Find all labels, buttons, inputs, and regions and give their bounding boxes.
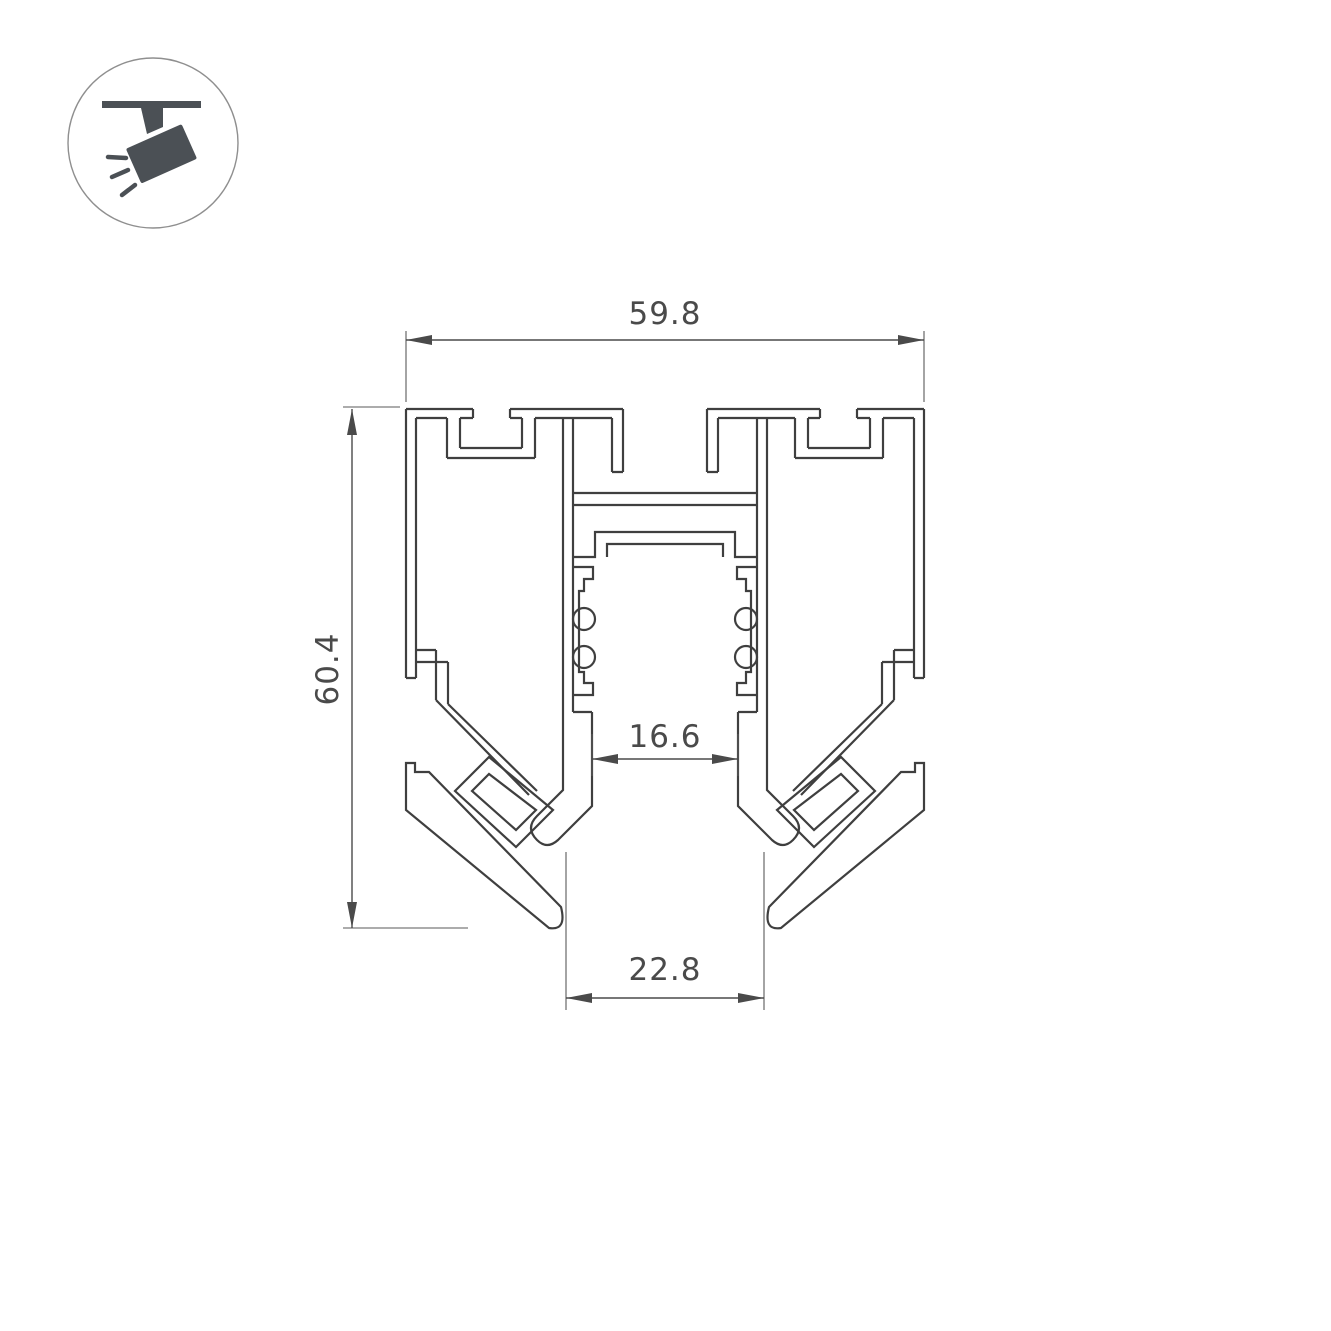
track-spotlight-icon — [68, 58, 238, 228]
profile-left-half — [406, 409, 665, 928]
conductor-contact-upper — [573, 608, 595, 630]
channel-wall-outline — [531, 418, 592, 845]
dimension-label-bottom-opening: 22.8 — [628, 952, 701, 988]
technical-drawing-page: 59.8 60.4 16.6 22.8 — [0, 0, 1331, 1331]
bridge-box-outline — [573, 493, 665, 557]
spotlight-glyph — [102, 101, 201, 184]
conductor-contact-lower — [573, 646, 595, 668]
spotlight-stem — [141, 108, 163, 134]
dimension-label-overall-height: 60.4 — [310, 632, 346, 705]
dimension-label-overall-width: 59.8 — [628, 296, 701, 332]
dimension-lines — [352, 340, 924, 998]
technical-drawing-canvas: 59.8 60.4 16.6 22.8 — [0, 0, 1331, 1331]
dimension-annotations: 59.8 60.4 16.6 22.8 — [310, 296, 924, 1010]
top-plate-outline — [406, 409, 623, 472]
outer-wall-outline — [406, 409, 537, 795]
spotlight-body — [126, 124, 197, 184]
light-rays — [108, 157, 135, 195]
extension-lines — [343, 331, 924, 1010]
wing-box-outline — [455, 757, 553, 847]
ceiling-bar — [102, 101, 201, 108]
dimension-arrowheads — [347, 335, 924, 1003]
profile-right-half — [665, 409, 924, 928]
dimension-label-track-opening: 16.6 — [628, 719, 701, 755]
plaster-wing-outline — [406, 763, 563, 928]
profile-cross-section — [406, 409, 924, 928]
